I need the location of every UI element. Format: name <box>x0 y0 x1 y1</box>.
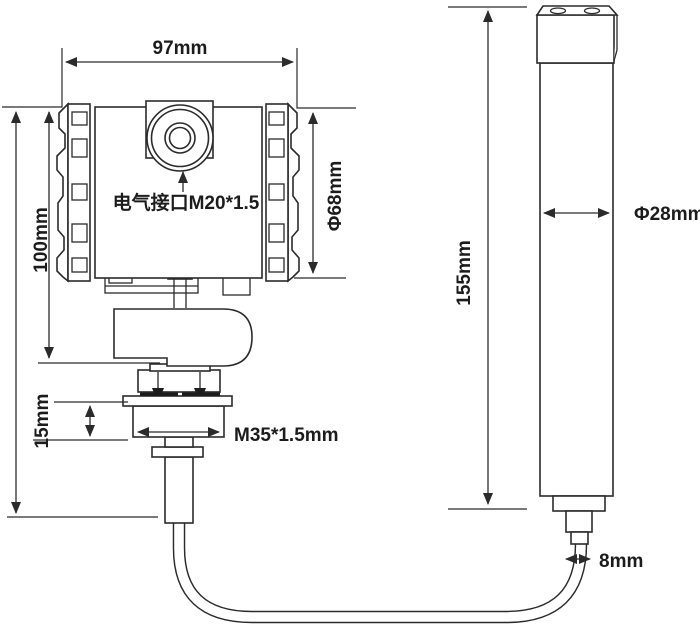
label-probe-length: 155mm <box>454 240 475 306</box>
process-connection <box>123 364 232 523</box>
probe-body <box>540 63 613 496</box>
ext-97-right <box>297 48 356 108</box>
level-probe <box>537 6 617 544</box>
dimension-lines <box>2 7 609 559</box>
label-probe-diameter: Φ28mm <box>634 204 700 225</box>
flange-plate <box>123 396 232 406</box>
transmitter-housing <box>57 101 299 281</box>
label-process-thread: M35*1.5mm <box>234 425 339 446</box>
probe-vent-hole-right <box>585 8 600 14</box>
label-cable-diameter: 8mm <box>599 551 643 572</box>
right-cap-profile <box>288 104 299 281</box>
left-cap-profile <box>57 104 68 281</box>
dimension-drawing: 97mm 100mm 电气接口M20*1.5 Φ68mm 15mm M35*1.… <box>0 0 700 629</box>
probe-step <box>553 496 605 511</box>
label-housing-height: 100mm <box>31 207 52 273</box>
entry-hole-inner <box>170 128 191 149</box>
hex-adapter <box>138 370 220 392</box>
label-housing-width: 97mm <box>153 38 208 59</box>
probe-neck <box>566 511 592 532</box>
gland-stem <box>165 437 193 447</box>
stud-foot-right <box>194 388 206 393</box>
sensor-capsule <box>114 309 252 366</box>
cable-gland-collar <box>152 447 203 457</box>
drawing-canvas: 97mm 100mm 电气接口M20*1.5 Φ68mm 15mm M35*1.… <box>0 0 700 629</box>
probe-cap <box>537 15 614 63</box>
connection-cable <box>179 521 581 617</box>
probe-vent-hole-left <box>551 8 566 14</box>
label-electrical-interface: 电气接口M20*1.5 <box>113 191 260 214</box>
right-step-block <box>223 277 250 295</box>
probe-neck-taper <box>571 532 588 544</box>
probe-top-face <box>537 6 617 15</box>
label-housing-diameter: Φ68mm <box>325 161 346 232</box>
cable-entry-pipe <box>165 457 193 523</box>
label-thread-length: 15mm <box>32 394 53 449</box>
ext-97-left <box>2 48 62 107</box>
stud-foot-left <box>152 388 164 393</box>
